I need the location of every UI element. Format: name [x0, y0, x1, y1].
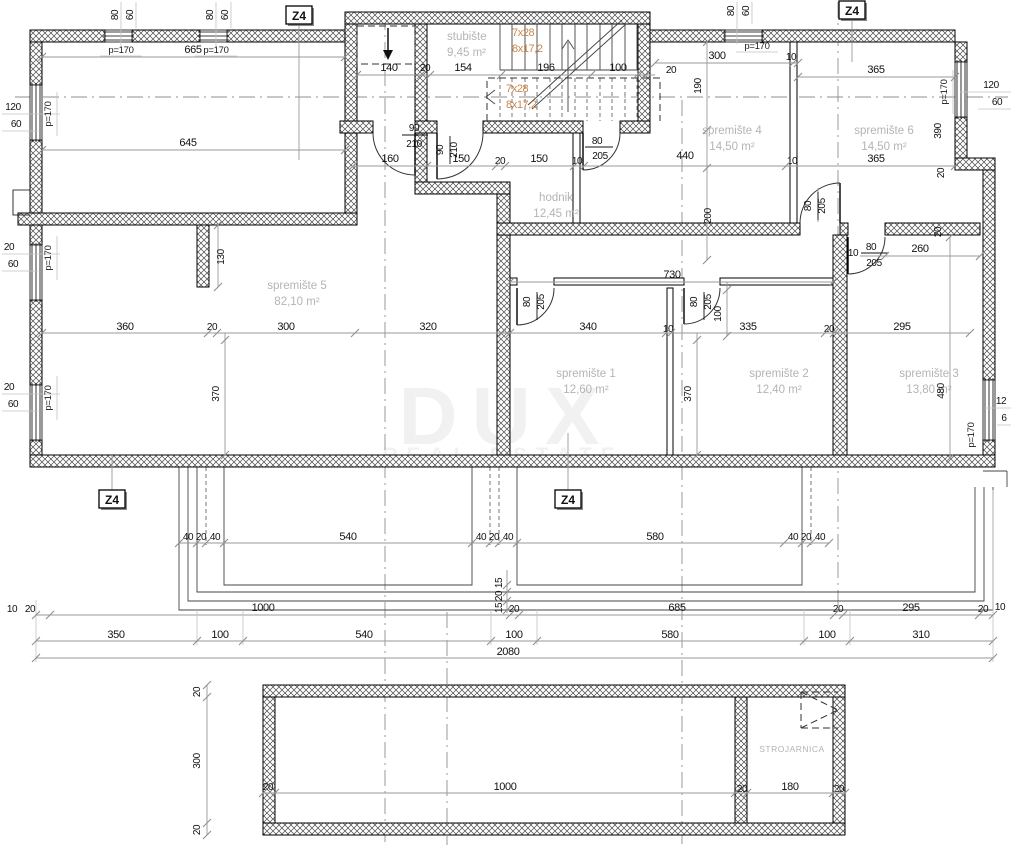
stair-run: 7x28 [506, 83, 529, 95]
door-dim: 210 [449, 141, 460, 157]
dim: 300 [277, 321, 294, 333]
window [30, 243, 42, 302]
parapet-label: p=170 [203, 45, 228, 56]
dim: 60 [11, 119, 22, 130]
room-area: 82,10 m² [274, 296, 320, 308]
dim: 40 [788, 532, 799, 543]
dim: 40 [815, 532, 826, 543]
dim: 20 [196, 532, 207, 543]
dim: 295 [893, 321, 910, 333]
room-area: 12,40 m² [756, 384, 802, 396]
dim: 295 [902, 602, 919, 614]
dim: 370 [683, 385, 694, 401]
parapet-label: p=170 [43, 101, 54, 126]
dim: 1000 [252, 602, 275, 614]
pool-structure [263, 685, 845, 835]
dim: 80 [726, 5, 737, 16]
dim: 100 [818, 629, 835, 641]
parapet-label: p=170 [744, 41, 769, 52]
dim: 20 [936, 167, 947, 178]
dim: 390 [933, 122, 944, 138]
dim: 20 [4, 382, 15, 393]
dim: 40 [183, 532, 194, 543]
room-area: 14,50 m² [861, 141, 907, 153]
door-dim: 205 [866, 258, 882, 269]
dim: 10 [572, 156, 583, 167]
stair-run: 7x28 [512, 27, 535, 39]
floor-plan-sheet: DUX REAL ESTATE [0, 0, 1011, 848]
section-marker-z4: Z4 [839, 1, 867, 21]
dim: 20 [834, 784, 845, 795]
door-dim: 80 [866, 242, 877, 253]
dim: 60 [8, 259, 19, 270]
dim: 20 [666, 65, 677, 76]
dim: 260 [911, 243, 928, 255]
window [198, 30, 229, 42]
door-dim: 80 [803, 200, 814, 211]
dim: 180 [781, 781, 798, 793]
section-marker-z4: Z4 [555, 490, 583, 510]
dim: 160 [381, 153, 398, 165]
dim: 20 [509, 604, 520, 615]
entrance-arrow [357, 26, 415, 64]
room-name: spremište 2 [749, 368, 808, 380]
dim: 60 [741, 5, 752, 16]
dim: 15 [494, 577, 505, 588]
dim: 540 [339, 531, 356, 543]
dim: 60 [992, 97, 1003, 108]
dim: 20 [978, 604, 989, 615]
dim: 310 [912, 629, 929, 641]
section-marker-label: Z4 [561, 493, 575, 507]
dim: 40 [476, 532, 487, 543]
door-dim: 80 [689, 296, 700, 307]
dim: 645 [179, 137, 196, 149]
room-area: 12,45 m² [533, 208, 579, 220]
stair-rise: 8x17,2 [512, 43, 543, 55]
dim: 200 [703, 207, 714, 223]
window [983, 378, 995, 442]
dim: 365 [867, 153, 884, 165]
room-name: spremište 5 [267, 280, 326, 292]
dim: 320 [419, 321, 436, 333]
dim: 10 [663, 324, 674, 335]
dim: 190 [693, 77, 704, 93]
terrace-outlines [179, 467, 1007, 610]
dim: 60 [8, 399, 19, 410]
door-dim: 205 [536, 293, 547, 309]
dim: 340 [579, 321, 596, 333]
room-name: spremište 1 [556, 368, 615, 380]
door-dim: 10 [848, 248, 859, 259]
dim: 20 [420, 63, 431, 74]
dim: 580 [646, 531, 663, 543]
section-marker-label: Z4 [105, 493, 119, 507]
floor-plan-drawing: DUX REAL ESTATE [0, 0, 1011, 848]
door-dim: 205 [817, 197, 828, 213]
section-marker-z4: Z4 [99, 490, 127, 510]
dim: 130 [216, 248, 227, 264]
door-dim: 80 [522, 296, 533, 307]
dim: 100 [505, 629, 522, 641]
dim: 540 [355, 629, 372, 641]
dim: 20 [4, 242, 15, 253]
room-name: spremište 4 [702, 125, 762, 137]
dim: 60 [220, 9, 231, 20]
parapet-label: p=170 [43, 245, 54, 270]
dim: 154 [454, 62, 471, 74]
window [30, 383, 42, 442]
dim: 300 [708, 50, 725, 62]
door-dim: 205 [592, 151, 608, 162]
dim: 365 [867, 64, 884, 76]
section-marker-label: Z4 [845, 4, 859, 18]
dim: 480 [936, 382, 947, 398]
dim: 20 [801, 532, 812, 543]
dim: 40 [503, 532, 514, 543]
dim: 730 [663, 269, 680, 281]
room-name: stubište [447, 31, 487, 43]
parapet-label: p=170 [108, 45, 133, 56]
dim: 20 [207, 322, 218, 333]
dim: 40 [210, 532, 221, 543]
dim-total: 2080 [497, 646, 520, 658]
stair-rise: 8x17,2 [506, 99, 537, 111]
dim: 360 [116, 321, 133, 333]
dim: 15 [494, 602, 505, 613]
dim: 440 [676, 150, 693, 162]
dim: 12 [996, 396, 1007, 407]
room-name: spremište 6 [854, 125, 913, 137]
dim: 100 [211, 629, 228, 641]
dim: 665 [184, 44, 201, 56]
parapet-label: p=170 [43, 385, 54, 410]
window [30, 83, 42, 142]
window [103, 30, 134, 42]
dim: 60 [125, 9, 136, 20]
dim: 100 [713, 305, 724, 321]
dim: 300 [192, 752, 203, 768]
dim: 20 [833, 604, 844, 615]
dim: 196 [537, 62, 554, 74]
door-dim: 90 [409, 123, 420, 134]
dim: 20 [192, 686, 203, 697]
dim: 120 [5, 102, 21, 113]
dim: 350 [107, 629, 124, 641]
door-dim: 90 [435, 144, 446, 155]
dim: 6 [1001, 413, 1007, 424]
dim: 80 [110, 9, 121, 20]
parapet-label: p=170 [939, 79, 950, 104]
dim: 80 [205, 9, 216, 20]
dim: 580 [661, 629, 678, 641]
dim: 685 [668, 602, 685, 614]
stair-direction-arrow [562, 40, 574, 112]
dim: 20 [933, 226, 944, 237]
room-area: 9,45 m² [447, 47, 486, 59]
dim: 335 [739, 321, 756, 333]
dim: 20 [192, 824, 203, 835]
room-area: 14,50 m² [709, 141, 755, 153]
room-name: hodnik [539, 192, 573, 204]
room-area: 12,60 m² [563, 384, 609, 396]
section-marker-z4: Z4 [286, 6, 314, 26]
parapet-label: p=170 [966, 422, 977, 447]
window [955, 60, 967, 119]
dim: 10 [787, 156, 798, 167]
dim: 20 [489, 532, 500, 543]
dim: 10 [7, 604, 18, 615]
door-dim: 80 [592, 136, 603, 147]
dim: 100 [609, 62, 626, 74]
section-marker-label: Z4 [292, 9, 306, 23]
room-name: spremište 3 [899, 368, 958, 380]
door-dim: 210 [406, 139, 422, 150]
dim: 370 [211, 385, 222, 401]
dim: 140 [380, 62, 397, 74]
dim: 1000 [494, 781, 517, 793]
room-name-strojarnica: STROJARNICA [759, 744, 824, 754]
dim: 120 [983, 80, 999, 91]
dim: 150 [530, 153, 547, 165]
dim: 20 [25, 604, 36, 615]
